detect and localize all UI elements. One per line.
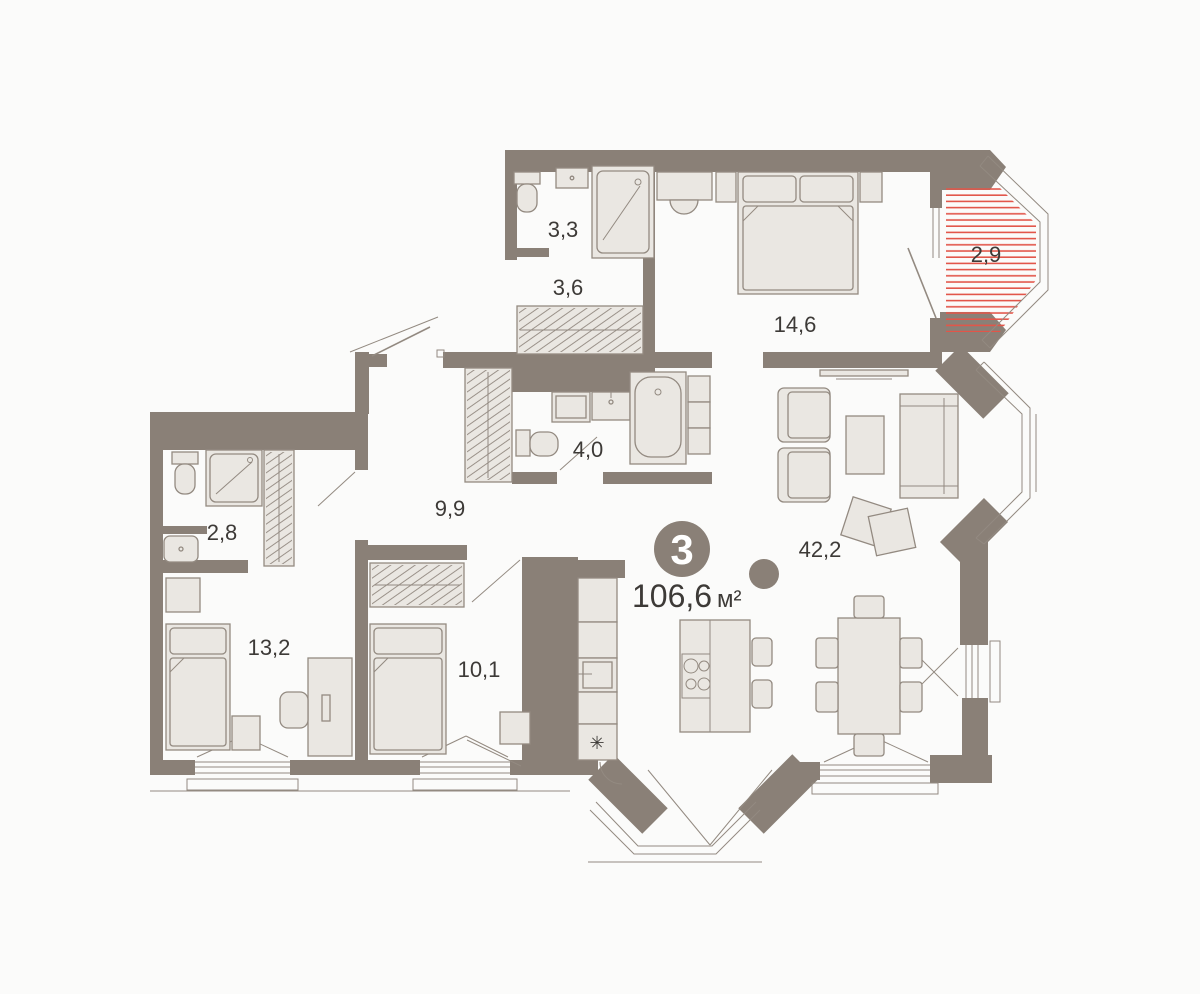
room-label-bathroom-top: 3,3 (548, 217, 579, 242)
pillow (374, 628, 442, 654)
bedside-table (232, 716, 260, 750)
toilet (516, 430, 530, 456)
room-label-bathroom-main: 4,0 (573, 437, 604, 462)
closet-wardrobe (517, 306, 643, 354)
nightstand-right (860, 172, 882, 202)
shelf (688, 402, 710, 428)
shelf (688, 428, 710, 454)
shelf (688, 376, 710, 402)
kitchen-island (680, 620, 772, 732)
chair (816, 638, 838, 668)
badge-area: 106,6 (632, 578, 712, 614)
entrance-door (350, 317, 444, 357)
cabinet (166, 578, 200, 612)
floor-plan: ✳ 3,3 (0, 0, 1200, 994)
tv (820, 370, 908, 376)
chair (854, 734, 884, 756)
pouf (868, 508, 915, 555)
room-label-balcony: 2,9 (971, 242, 1002, 267)
entry-wardrobe (465, 368, 512, 482)
living-furniture (749, 370, 958, 589)
bathroom-top-fixtures (514, 166, 654, 258)
pillow (170, 628, 226, 654)
bedside-table (500, 712, 530, 744)
room-label-bedroom-main: 14,6 (774, 312, 817, 337)
room-label-bedroom-small: 10,1 (458, 657, 501, 682)
chair (900, 682, 922, 712)
floor-plan-svg: ✳ 3,3 (0, 0, 1200, 994)
badge-area-unit: м² (717, 586, 742, 613)
desk-chair (280, 692, 308, 728)
toilet-bowl (517, 184, 537, 212)
badge-rooms-count: 3 (670, 526, 693, 573)
bedroom-main-furniture (657, 172, 882, 294)
monitor (322, 695, 330, 721)
vanity-stool (670, 200, 698, 214)
coffee-table (846, 416, 884, 474)
room-label-closet: 3,6 (553, 275, 584, 300)
chair (900, 638, 922, 668)
toilet (514, 172, 540, 184)
toilet (172, 452, 198, 464)
toilet-bowl (530, 432, 558, 456)
dining-set (816, 596, 922, 756)
stool (752, 638, 772, 666)
blanket (374, 658, 442, 750)
dining-table (838, 618, 900, 734)
apartment-badge: 3 106,6 м² (632, 521, 742, 614)
pillow (743, 176, 796, 202)
chair (854, 596, 884, 618)
room-label-bedroom-left: 13,2 (248, 635, 291, 660)
chair (816, 682, 838, 712)
nightstand-left (716, 172, 736, 202)
appliance-icon: ✳ (589, 733, 604, 753)
balcony-door (908, 208, 939, 318)
room-label-bathroom-left: 2,8 (207, 520, 238, 545)
room-label-living: 42,2 (799, 537, 842, 562)
toilet-bowl (175, 464, 195, 494)
sofa (900, 394, 958, 498)
stool (752, 680, 772, 708)
bedroom-small-furniture (370, 563, 530, 754)
sink-drain (570, 176, 574, 180)
kitchen-units: ✳ (578, 578, 617, 760)
room-label-hallway: 9,9 (435, 496, 466, 521)
blanket (170, 658, 226, 746)
pillow (800, 176, 853, 202)
vanity-desk (657, 172, 712, 200)
blanket (743, 206, 853, 290)
column (749, 559, 779, 589)
